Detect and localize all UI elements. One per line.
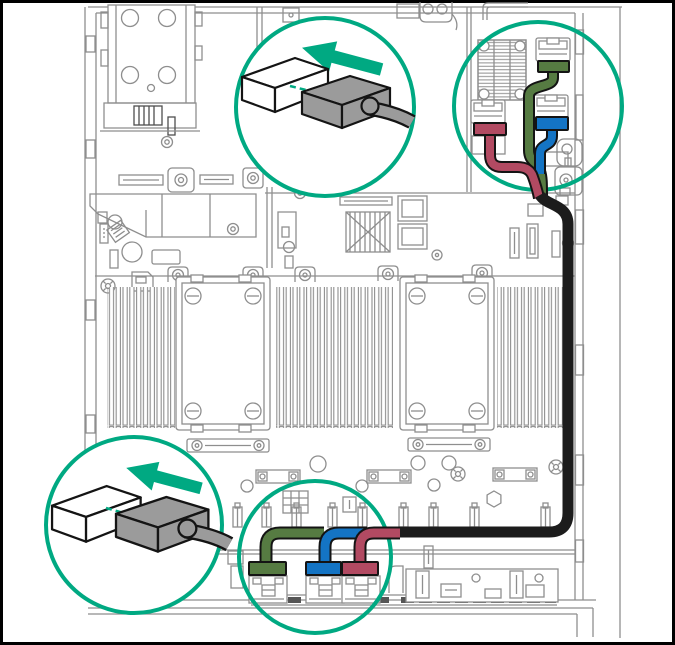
diagram-canvas: [0, 0, 675, 645]
cpu-socket-2: [400, 275, 494, 432]
heatsink: [478, 40, 526, 100]
red-connector-bottom: [342, 562, 378, 575]
dimm-bank-center: [276, 287, 393, 428]
cabling-diagram: [0, 0, 675, 645]
backplane-port-2: [306, 576, 344, 603]
green-connector-bottom: [249, 562, 286, 575]
blue-connector-bottom: [306, 562, 341, 575]
riser-port-red: [471, 100, 505, 123]
red-connector-top: [474, 123, 506, 135]
backplane-port-1: [249, 576, 287, 603]
dimm-bank-left: [107, 287, 175, 428]
blue-connector-top: [536, 117, 568, 130]
top-detail-bubble: [236, 18, 414, 196]
dimm-bank-right: [497, 287, 563, 428]
green-connector-top: [538, 61, 569, 72]
riser-port-blue: [534, 95, 568, 118]
cpu-socket-1: [176, 275, 270, 432]
small-heatsink: [346, 212, 390, 252]
riser-port-green: [536, 38, 570, 61]
backplane-port-3: [342, 576, 380, 603]
